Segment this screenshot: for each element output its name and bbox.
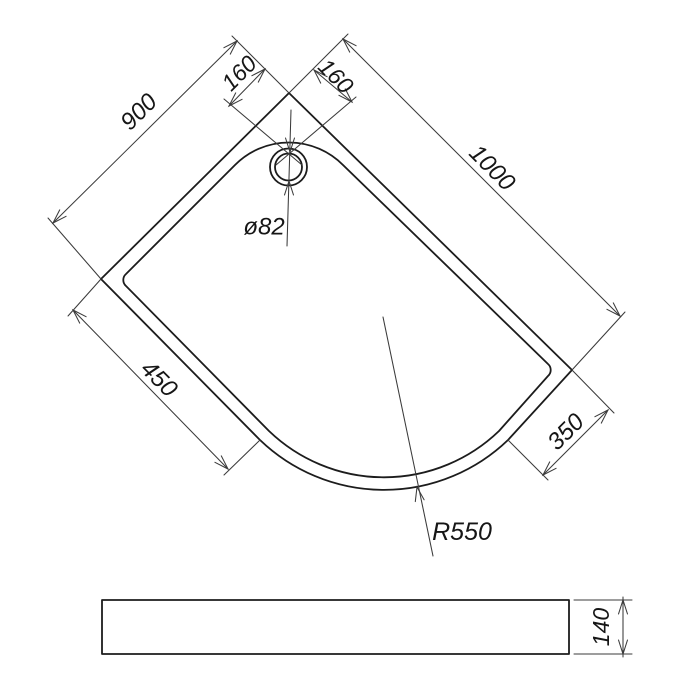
ext-drain-up-right xyxy=(276,97,356,165)
ext-right-vertex-down xyxy=(572,370,614,413)
ext-arc-start xyxy=(224,440,260,475)
dim-900-label: 900 xyxy=(115,88,163,136)
drawing-page: 900 160 160 1000 450 350 ø82 R550 140 xyxy=(0,0,684,683)
dimension-labels: 900 160 160 1000 450 350 ø82 R550 140 xyxy=(115,50,614,646)
tray-outer-outline xyxy=(101,93,572,490)
dim-1000 xyxy=(343,39,620,316)
tray-plan-view xyxy=(101,93,572,490)
drain-inner-circle xyxy=(275,154,302,181)
dim-350-label: 350 xyxy=(542,408,590,456)
dim-450-label: 450 xyxy=(135,355,183,403)
corner-radius-label: R550 xyxy=(432,518,492,546)
dim-140 xyxy=(619,597,628,657)
dim-140-label: 140 xyxy=(588,608,614,647)
drain-diameter-label: ø82 xyxy=(243,214,284,241)
ext-left-vertex-up xyxy=(48,218,101,279)
dim-drain-diameter xyxy=(285,110,295,246)
dim-corner-radius-leader xyxy=(383,317,433,556)
technical-drawing-canvas: 900 160 160 1000 450 350 ø82 R550 140 xyxy=(0,0,684,683)
dim-160-left-label: 160 xyxy=(216,50,262,96)
side-view-outline xyxy=(102,600,569,654)
ext-right-vertex-up xyxy=(572,312,625,370)
dim-160-right-label: 160 xyxy=(313,53,359,99)
tray-side-view xyxy=(102,597,632,657)
dim-900 xyxy=(53,41,237,223)
ext-arc-end xyxy=(508,440,548,480)
